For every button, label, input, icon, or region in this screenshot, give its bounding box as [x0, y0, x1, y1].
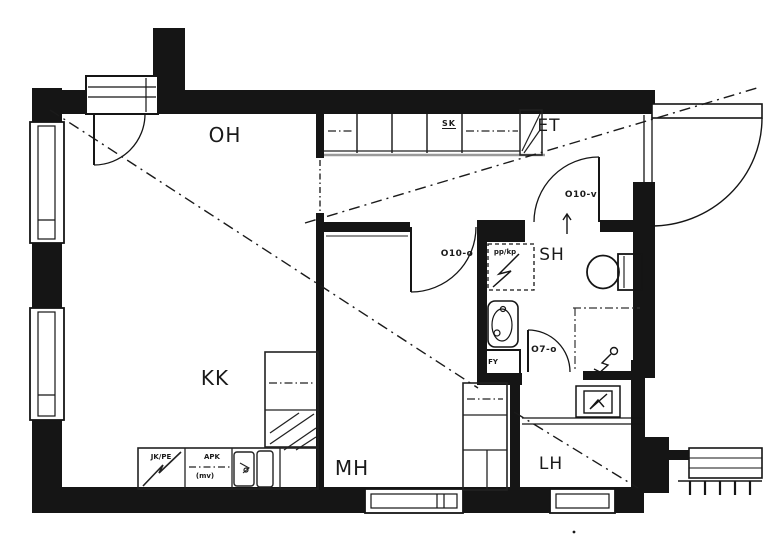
wall-sh-header: [477, 220, 525, 242]
window-left-lower: [30, 308, 64, 420]
fixture-label-mv: (mv): [196, 472, 214, 480]
entry-door-leaf: [652, 104, 762, 118]
wall-exterior-band: [669, 450, 689, 460]
floor-plan-page: OH KK MH ET SH LH O10-v O10-o O7-o SK pp…: [0, 0, 768, 552]
window-lh: [550, 489, 615, 513]
entry-door-swing-arc: [651, 118, 762, 226]
fixture-label-sk: SK: [442, 119, 456, 129]
door-label-o10v: O10-v: [565, 190, 597, 200]
room-label-sh: SH: [539, 245, 565, 265]
room-label-et: ET: [537, 116, 560, 136]
exterior-ledge: [678, 448, 762, 495]
door-mh-o10o: [411, 227, 476, 292]
fixture-label-apk: APK: [204, 453, 220, 461]
wall-right-upper: [633, 182, 655, 378]
wall-et-sh-stub: [600, 220, 633, 232]
balcony-door: [86, 76, 158, 114]
sauna-heater-kiuas: [576, 386, 620, 417]
floor-plan-drawing: [0, 0, 768, 552]
window-left-upper: [30, 122, 64, 243]
shower-zone-boundary: [573, 308, 640, 371]
entrance-door: [644, 104, 762, 226]
wall-mh-north: [324, 222, 410, 232]
interior-doors: [94, 114, 599, 372]
door-balcony-swing: [94, 114, 145, 165]
door-label-o10o: O10-o: [441, 249, 474, 259]
fixture-label-fy: FY: [488, 358, 498, 366]
stray-dot: [573, 531, 576, 534]
window-mh: [365, 489, 463, 513]
wall-kk-mh-upper: [316, 108, 324, 158]
fixture-label-jk-pe: JK/PE: [151, 453, 172, 461]
room-label-lh: LH: [539, 454, 563, 474]
wall-sh-lh-divider: [583, 371, 645, 380]
room-label-kk: KK: [201, 366, 229, 390]
shower-drain-symbol: [594, 348, 618, 376]
door-label-o7o: O7-o: [531, 345, 557, 355]
sauna-elements: [522, 386, 643, 424]
closet-row: [324, 110, 545, 155]
kitchen-sink: [234, 451, 273, 487]
wall-lh-west: [510, 378, 520, 490]
room-label-oh: OH: [209, 123, 242, 147]
wall-corner-bottom-right: [631, 437, 669, 493]
room-label-mh: MH: [335, 456, 369, 480]
bathroom-sink: [488, 301, 518, 347]
interior-walls: [316, 108, 645, 490]
threshold-arrow: [563, 214, 571, 234]
wardrobe-column-mh: [463, 383, 507, 490]
section-line-diagonal: [50, 110, 478, 388]
fixture-label-pp-kp: pp/kp: [494, 248, 516, 256]
